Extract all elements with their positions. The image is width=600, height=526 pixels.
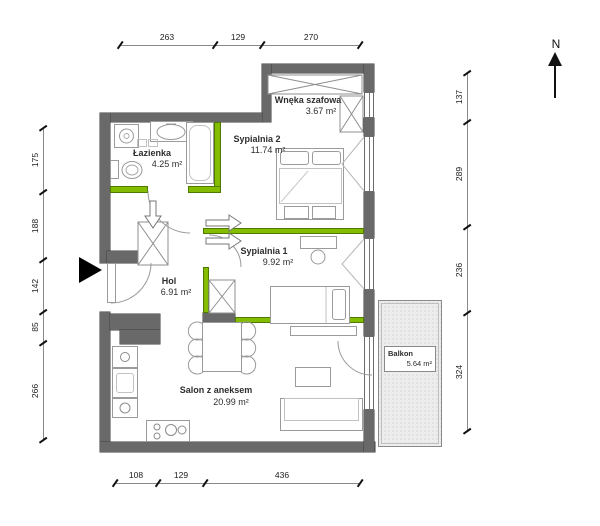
room-name-balkon: Balkon (385, 347, 435, 358)
window-swing-lines (342, 137, 364, 289)
balcony-floor (381, 303, 439, 444)
window-bedroom1 (364, 238, 374, 290)
dim-tick (39, 437, 47, 443)
wall-left-upper (100, 113, 110, 263)
partition-bath-bedroom2 (214, 122, 221, 193)
bed-bench (312, 206, 336, 219)
room-name-sypialnia1: Sypialnia 1 (240, 246, 287, 256)
dim-label-left-2: 188 (30, 219, 40, 233)
north-arrow-icon (554, 64, 556, 98)
dim-line-left (43, 128, 44, 440)
partition-bath-south (188, 186, 221, 193)
partition-hall-bedroom1 (203, 267, 209, 313)
dim-label-top-3: 270 (304, 32, 318, 42)
dim-label-left-4: 85 (30, 322, 40, 331)
dim-label-left-3: 142 (30, 279, 40, 293)
room-area-lazienka: 4.25 m² (152, 159, 183, 169)
room-area-sypialnia2: 11.74 m² (251, 145, 286, 155)
toilet-tank (110, 160, 119, 179)
balcony-door (364, 336, 374, 410)
bathtub-inner (189, 125, 211, 181)
wall-bottom (100, 442, 375, 452)
dim-label-right-3: 236 (454, 263, 464, 277)
balcony-label-box: Balkon 5.64 m² (384, 346, 436, 372)
dim-line-bottom (115, 483, 360, 484)
bathroom-shelf (148, 139, 158, 147)
tv-cabinet (290, 326, 357, 336)
dim-tick (357, 479, 363, 487)
room-area-balkon: 5.64 m² (385, 358, 435, 368)
dining-table (202, 322, 242, 372)
floor-plan: 263 129 270 108 129 436 175 188 142 85 2… (0, 0, 600, 526)
kitchen-sink (116, 373, 134, 393)
dim-label-right-2: 289 (454, 167, 464, 181)
bed-bench (284, 206, 309, 219)
dim-tick (463, 428, 471, 434)
room-name-salon: Salon z aneksem (180, 385, 253, 395)
partition-bath-south (110, 186, 148, 193)
pillow (332, 289, 346, 320)
wall-top-upper (262, 64, 372, 73)
dim-label-right-4: 324 (454, 365, 464, 379)
dim-label-left-5: 266 (30, 384, 40, 398)
window-bedroom2 (364, 136, 374, 192)
dim-tick (357, 41, 363, 49)
dim-line-top (120, 45, 360, 46)
dim-label-top-1: 263 (160, 32, 174, 42)
wall-right (364, 410, 374, 452)
room-name-wneka: Wnęka szafowa (275, 95, 342, 105)
kitchen-cabinet (112, 398, 138, 418)
wall-right (364, 118, 374, 136)
room-area-wneka: 3.67 m² (306, 106, 337, 116)
dim-label-left-1: 175 (30, 153, 40, 167)
wall-entry-nook (110, 314, 160, 330)
wall-entry-stub (107, 251, 142, 263)
dim-label-top-2: 129 (231, 32, 245, 42)
stove (146, 420, 190, 442)
kitchen-fridge (112, 346, 138, 368)
dim-label-bottom-2: 129 (174, 470, 188, 480)
room-area-hol: 6.91 m² (161, 287, 192, 297)
sofa-seat (284, 398, 359, 421)
wall-left-lower (100, 312, 110, 452)
pillow (312, 151, 341, 165)
wall-right (364, 64, 374, 92)
desk (300, 236, 337, 249)
balcony-area (378, 300, 442, 447)
north-label: N (552, 37, 561, 51)
entrance-arrow-icon (79, 257, 102, 283)
wall-right (364, 192, 374, 238)
room-name-sypialnia2: Sypialnia 2 (233, 134, 280, 144)
dim-label-bottom-1: 108 (129, 470, 143, 480)
wall-right (364, 290, 374, 336)
coffee-table (295, 367, 331, 387)
wall-step (262, 64, 271, 122)
bathroom-shelf (137, 139, 147, 147)
entry-door-leaf (107, 263, 116, 303)
washing-machine (114, 124, 139, 148)
room-area-salon: 20.99 m² (213, 397, 249, 407)
room-name-hol: Hol (162, 276, 177, 286)
room-name-lazienka: Łazienka (133, 148, 171, 158)
door-direction-arrows (145, 201, 241, 249)
bed-blanket (279, 168, 342, 204)
wall-entry-nook (120, 330, 160, 344)
window-closet (364, 92, 374, 118)
partition-bedrooms (203, 228, 364, 234)
dim-line-right (467, 73, 468, 431)
dim-label-right-1: 137 (454, 90, 464, 104)
room-area-sypialnia1: 9.92 m² (263, 257, 294, 267)
dim-label-bottom-3: 436 (275, 470, 289, 480)
